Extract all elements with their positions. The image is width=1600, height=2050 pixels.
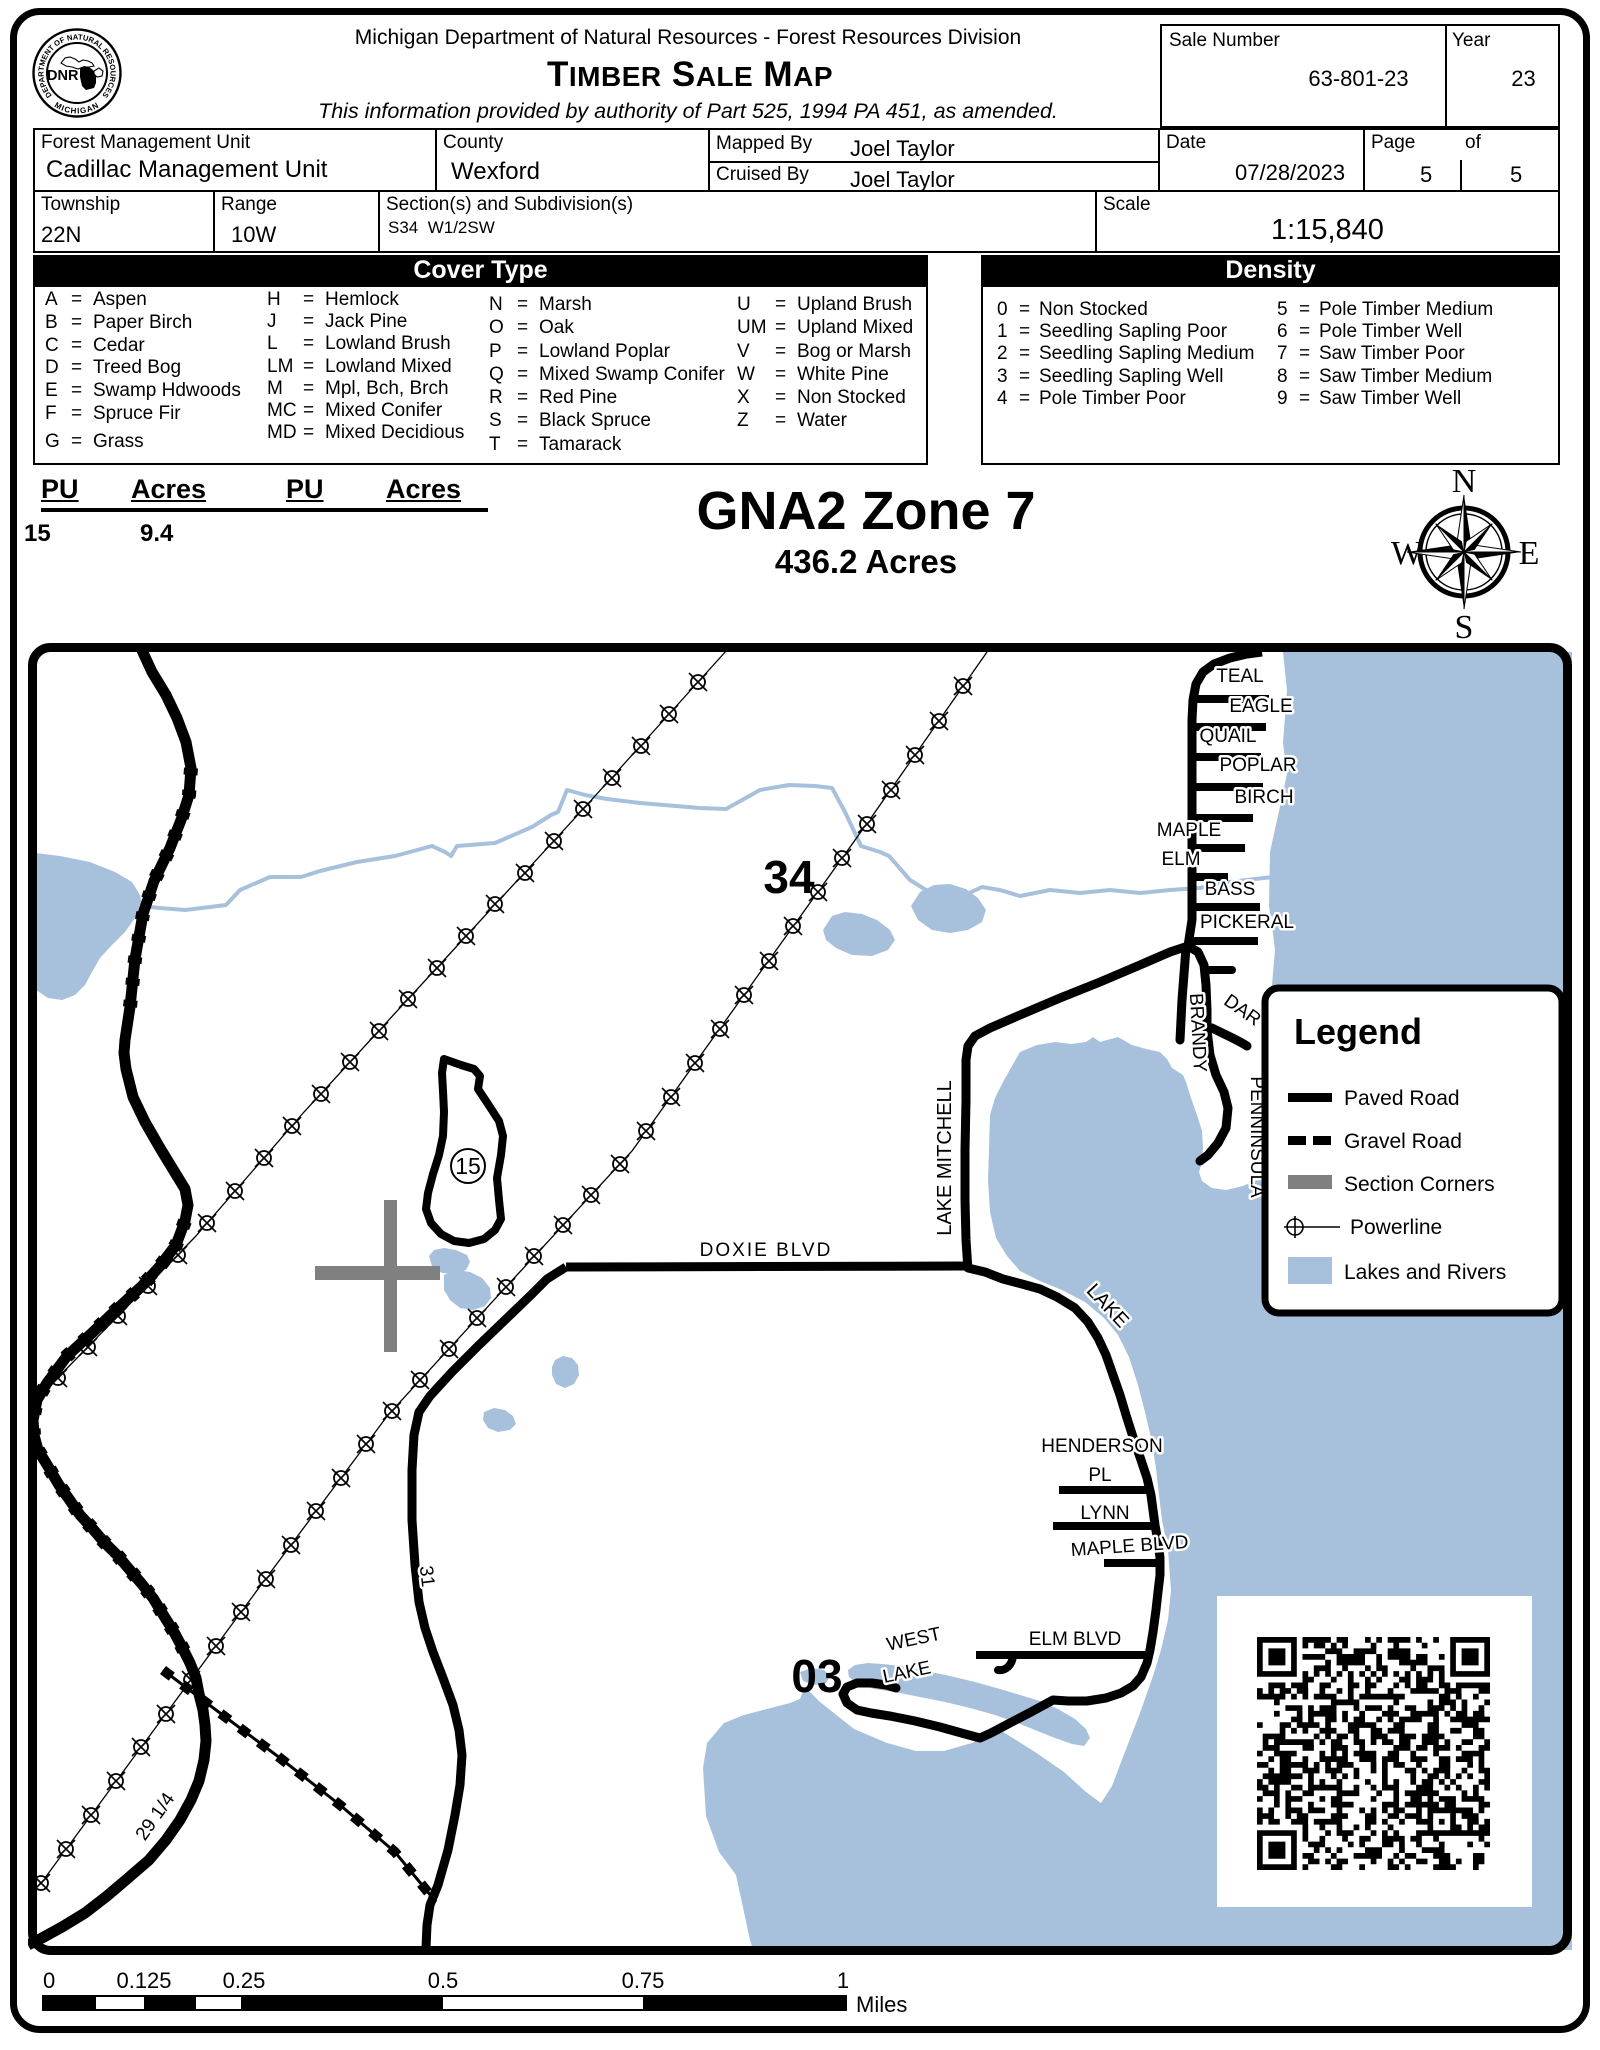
svg-text:0.125: 0.125 [116,1968,171,1993]
svg-text:Miles: Miles [856,1992,907,2017]
svg-text:Section Corners: Section Corners [1344,1173,1495,1196]
svg-text:03: 03 [791,1650,842,1702]
svg-text:0.5: 0.5 [428,1968,459,1993]
svg-text:TEAL: TEAL [1216,666,1264,687]
svg-text:0: 0 [43,1968,55,1993]
svg-text:31: 31 [415,1565,438,1589]
svg-text:DNR: DNR [47,68,79,84]
svg-text:LAKE MITCHELL: LAKE MITCHELL [934,1080,956,1236]
svg-text:0.75: 0.75 [622,1968,665,1993]
svg-text:PL: PL [1088,1465,1111,1486]
svg-text:1: 1 [837,1968,849,1993]
svg-text:POPLAR: POPLAR [1219,755,1296,776]
svg-text:ELM BLVD: ELM BLVD [1029,1629,1122,1650]
svg-text:Powerline: Powerline [1350,1216,1442,1239]
svg-text:PICKERAL: PICKERAL [1200,912,1294,933]
svg-text:BIRCH: BIRCH [1234,787,1293,808]
svg-text:0.25: 0.25 [223,1968,266,1993]
svg-text:HENDERSON: HENDERSON [1041,1436,1162,1457]
svg-text:Legend: Legend [1294,1011,1422,1052]
svg-text:DOXIE BLVD: DOXIE BLVD [700,1240,833,1261]
svg-text:N: N [1452,463,1477,500]
svg-text:EAGLE: EAGLE [1229,696,1292,717]
svg-text:QUAIL: QUAIL [1199,726,1256,747]
svg-text:34: 34 [763,851,815,903]
svg-text:MAPLE: MAPLE [1157,820,1221,841]
svg-text:Paved Road: Paved Road [1344,1087,1460,1110]
svg-text:ELM: ELM [1161,849,1200,870]
svg-text:BASS: BASS [1205,879,1256,900]
svg-text:E: E [1519,535,1540,572]
svg-text:S: S [1455,609,1474,642]
svg-text:Gravel Road: Gravel Road [1344,1130,1462,1153]
svg-text:15: 15 [455,1153,481,1179]
svg-text:LYNN: LYNN [1080,1503,1129,1524]
svg-text:BRANDY: BRANDY [1185,993,1210,1073]
svg-text:Lakes and Rivers: Lakes and Rivers [1344,1261,1506,1284]
